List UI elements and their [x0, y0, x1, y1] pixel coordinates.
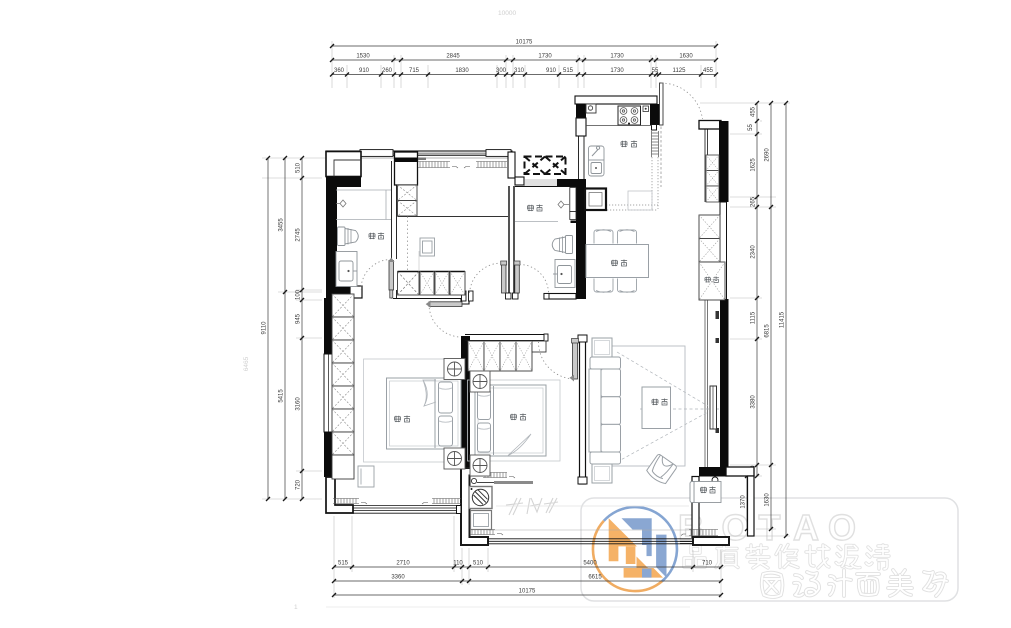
svg-text:6615: 6615 — [588, 575, 602, 581]
svg-text:2845: 2845 — [446, 54, 460, 60]
svg-text:510: 510 — [473, 561, 484, 567]
svg-text:910: 910 — [546, 68, 557, 74]
svg-text:1530: 1530 — [356, 54, 370, 60]
svg-text:2340: 2340 — [751, 245, 757, 259]
svg-text:9110: 9110 — [262, 321, 268, 335]
svg-text:2710: 2710 — [396, 561, 410, 567]
svg-text:3160: 3160 — [296, 397, 302, 411]
svg-text:110: 110 — [453, 561, 463, 567]
svg-text:3360: 3360 — [391, 575, 405, 581]
svg-text:360: 360 — [334, 68, 345, 74]
svg-text:2690: 2690 — [765, 148, 771, 162]
svg-text:1125: 1125 — [673, 68, 687, 74]
svg-text:1630: 1630 — [765, 493, 771, 507]
svg-text:O: O — [828, 507, 856, 548]
svg-text:5415: 5415 — [279, 389, 285, 403]
svg-text:6465: 6465 — [243, 356, 250, 371]
svg-text:10175: 10175 — [516, 40, 533, 46]
svg-text:100: 100 — [296, 289, 302, 300]
svg-text:10175: 10175 — [519, 589, 536, 595]
svg-text:455: 455 — [751, 106, 757, 117]
svg-text:1625: 1625 — [751, 158, 757, 172]
svg-text:1830: 1830 — [455, 68, 469, 74]
svg-text:1730: 1730 — [610, 54, 624, 60]
svg-text:55: 55 — [652, 68, 659, 74]
svg-text:10000: 10000 — [498, 10, 516, 17]
svg-text:5400: 5400 — [583, 561, 597, 567]
svg-text:1115: 1115 — [751, 311, 757, 324]
svg-text:3380: 3380 — [751, 395, 757, 409]
svg-text:3455: 3455 — [279, 218, 285, 232]
svg-text:260: 260 — [382, 68, 393, 74]
svg-text:720: 720 — [296, 479, 302, 490]
svg-text:T: T — [759, 507, 781, 548]
svg-text:515: 515 — [338, 561, 349, 567]
svg-text:300: 300 — [496, 68, 507, 74]
svg-text:265: 265 — [751, 196, 757, 207]
svg-text:1730: 1730 — [610, 68, 624, 74]
svg-text:1630: 1630 — [679, 54, 693, 60]
svg-text:1370: 1370 — [741, 495, 747, 509]
svg-text:710: 710 — [702, 561, 713, 567]
svg-text:515: 515 — [563, 68, 574, 74]
svg-text:715: 715 — [409, 68, 420, 74]
svg-text:310: 310 — [514, 68, 525, 74]
svg-text:945: 945 — [296, 313, 302, 324]
svg-text:1730: 1730 — [538, 54, 552, 60]
svg-text:55: 55 — [748, 124, 754, 131]
svg-text:A: A — [793, 507, 819, 548]
svg-text:2745: 2745 — [296, 228, 302, 242]
svg-text:6815: 6815 — [765, 324, 771, 338]
svg-text:910: 910 — [359, 68, 370, 74]
svg-text:455: 455 — [703, 68, 714, 74]
svg-text:11415: 11415 — [780, 311, 786, 328]
svg-text:1: 1 — [294, 604, 298, 611]
svg-text:510: 510 — [296, 162, 302, 173]
